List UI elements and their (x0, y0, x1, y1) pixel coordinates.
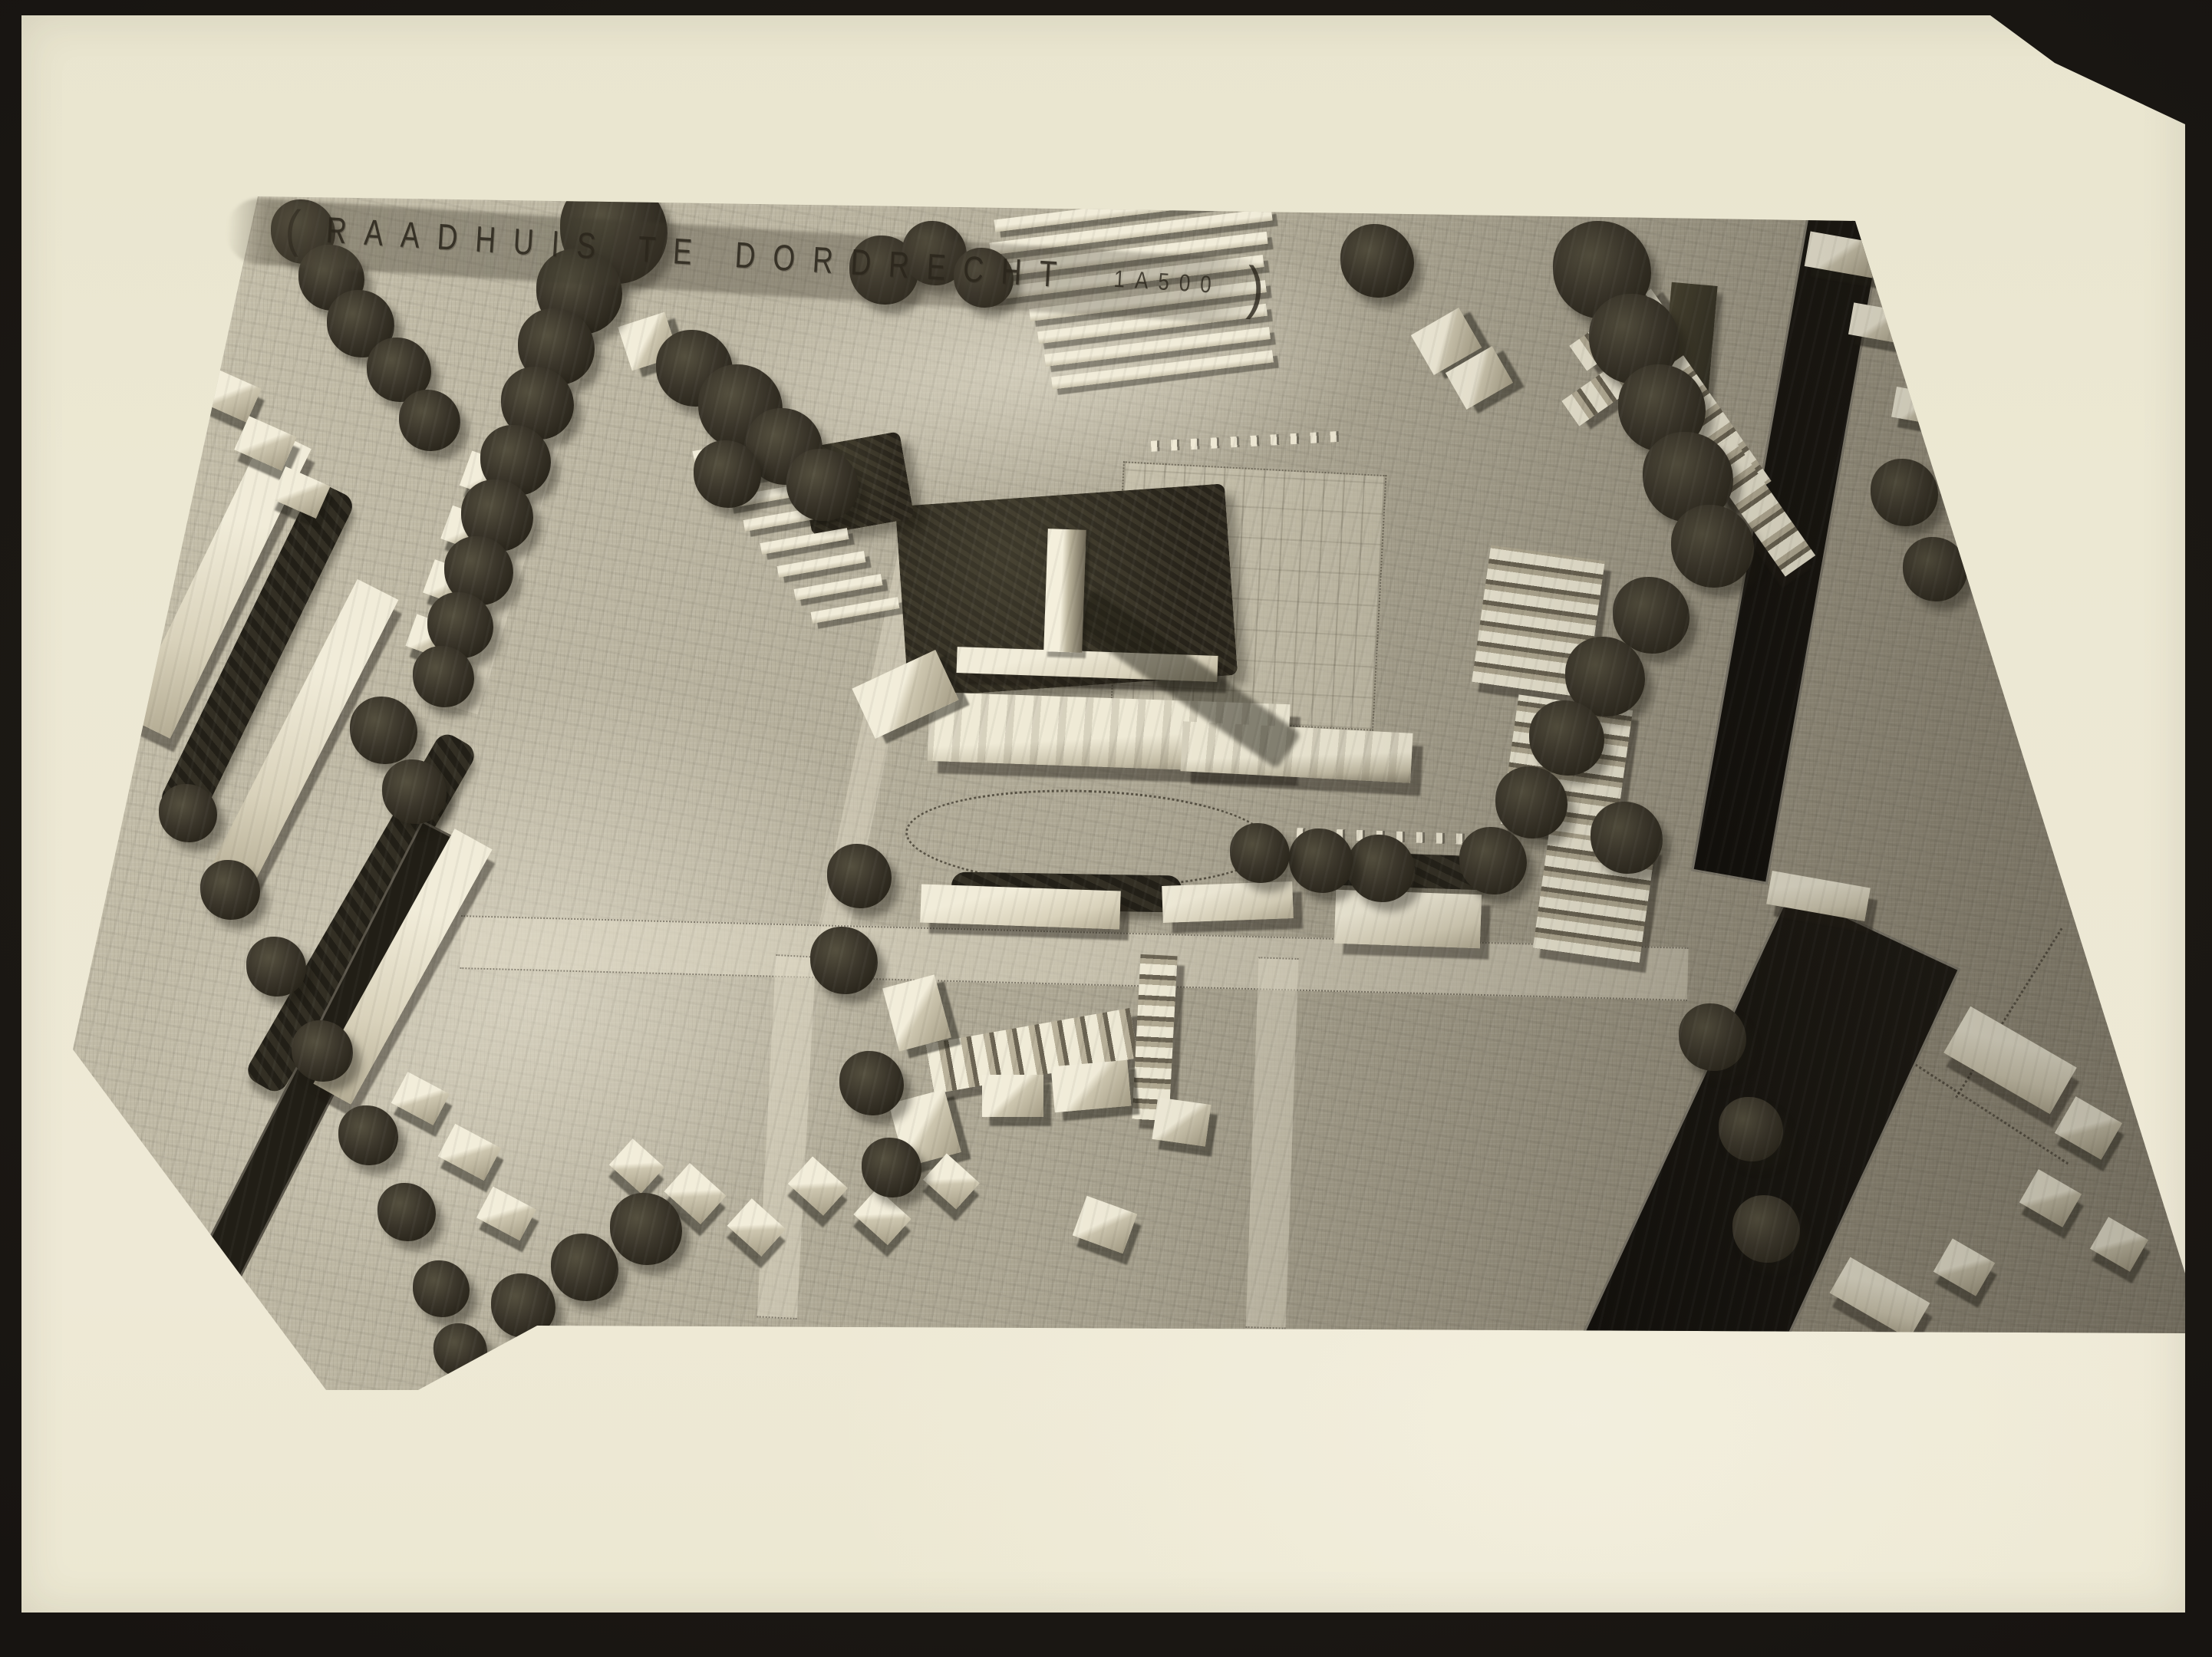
stepped-row (776, 551, 865, 578)
tree (1903, 537, 1967, 601)
tree (862, 1138, 921, 1197)
tree (827, 844, 892, 908)
south-terrace-col (1132, 954, 1177, 1120)
tree (399, 390, 460, 451)
tree (1289, 828, 1353, 893)
scanned-photograph: ( RAADHUIS TE DORDRECHT 1A500 ) (0, 0, 2212, 1657)
tree (200, 860, 260, 920)
south-slab (920, 884, 1121, 929)
tree (1459, 827, 1527, 894)
road-south (1246, 957, 1299, 1329)
tree (694, 440, 761, 508)
tree (413, 1260, 470, 1317)
tree (350, 697, 417, 764)
tree (413, 646, 474, 707)
tree (1347, 835, 1415, 902)
tree (246, 937, 306, 997)
photo-print: ( RAADHUIS TE DORDRECHT 1A500 ) (21, 15, 2185, 1613)
tree (810, 927, 878, 994)
tree (382, 759, 447, 824)
tree (610, 1193, 682, 1265)
se-slab (1830, 1257, 1930, 1339)
se-house (2019, 1169, 2081, 1227)
tree (491, 1273, 555, 1338)
small-house (1152, 1097, 1211, 1146)
title-open-paren: ( (284, 199, 302, 259)
tree (292, 1020, 353, 1082)
tree (1495, 766, 1568, 838)
photo-scene: ( RAADHUIS TE DORDRECHT 1A500 ) (0, 0, 2212, 1657)
detached-house (1073, 1195, 1138, 1253)
se-house (2055, 1096, 2122, 1160)
title-scale-label: 1A500 (1113, 264, 1222, 299)
tree (1871, 459, 1938, 526)
tree (1340, 224, 1414, 298)
west-house (199, 367, 262, 423)
tree (1719, 1097, 1783, 1161)
tree (338, 1105, 398, 1165)
tree (786, 449, 859, 521)
raadhuis-tower (1043, 529, 1086, 653)
tree (1671, 505, 1754, 588)
tree (839, 1051, 904, 1115)
east-block (1334, 890, 1482, 949)
se-house (1933, 1238, 1995, 1296)
tree (433, 1323, 487, 1377)
se-house (2090, 1217, 2148, 1272)
tree (1230, 823, 1290, 883)
west-house (158, 311, 217, 364)
house-right-bank (1891, 387, 1951, 427)
tree (551, 1234, 618, 1301)
small-house (1051, 1060, 1132, 1112)
stepped-row (760, 528, 849, 555)
south-slab (1162, 881, 1294, 923)
tree (1732, 1195, 1800, 1263)
tree (1679, 1003, 1746, 1071)
tree (159, 784, 217, 842)
small-house (982, 1075, 1043, 1117)
tree (1591, 802, 1663, 874)
tree (377, 1183, 436, 1241)
